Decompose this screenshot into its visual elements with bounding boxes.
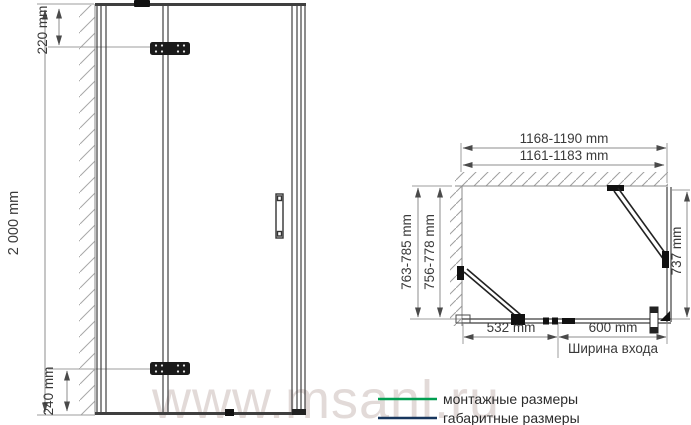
entrance-caption: Ширина входа [568, 341, 659, 356]
legend-mounting-label: монтажные размеры [443, 391, 578, 407]
corner-floor-bracket [292, 409, 306, 415]
height-dimension-label: 2 000 mm [6, 191, 22, 255]
mounting-depth-label: 756-778 mm [422, 214, 437, 290]
support-bar-left [457, 266, 525, 325]
shower-enclosure-dimension-diagram: www.msanl.ru [0, 0, 691, 425]
fixed-section-width-label: 532 mm [487, 320, 536, 335]
door-handle [276, 194, 283, 238]
side-panel-depth-label: 737 mm [669, 227, 684, 276]
support-bar-right [607, 185, 669, 268]
bottom-hinge-offset-label: 240 mm [41, 367, 56, 416]
front-frame-profiles [97, 3, 305, 414]
door-hinge-top [150, 42, 190, 55]
top-hinge-offset-label: 220 mm [35, 6, 50, 55]
plan-left-wall-hatch [450, 186, 462, 326]
front-wall-hatch [79, 4, 95, 415]
mounting-width-label: 1161-1183 mm [520, 148, 609, 163]
front-top-rail [95, 3, 306, 6]
front-elevation-view: 2 000 mm 220 mm 240 mm [6, 0, 306, 416]
entrance-width-label: 600 mm [589, 320, 638, 335]
plan-glass-panels [462, 187, 671, 323]
plan-back-wall-hatch [455, 172, 668, 186]
legend-overall-label: габаритные размеры [443, 410, 580, 425]
overall-depth-label: 763-785 mm [399, 214, 414, 290]
floor-bracket [225, 409, 234, 416]
top-plan-view: 1168-1190 mm 1161-1183 mm 763-785 mm 756… [399, 131, 690, 358]
overall-width-label: 1168-1190 mm [520, 131, 609, 146]
front-bottom-rail [95, 412, 306, 415]
door-hinge-bottom [150, 362, 190, 375]
front-dimension-lines [45, 9, 67, 412]
top-clamp-bracket [134, 0, 150, 7]
diagram-svg: www.msanl.ru [0, 0, 691, 425]
